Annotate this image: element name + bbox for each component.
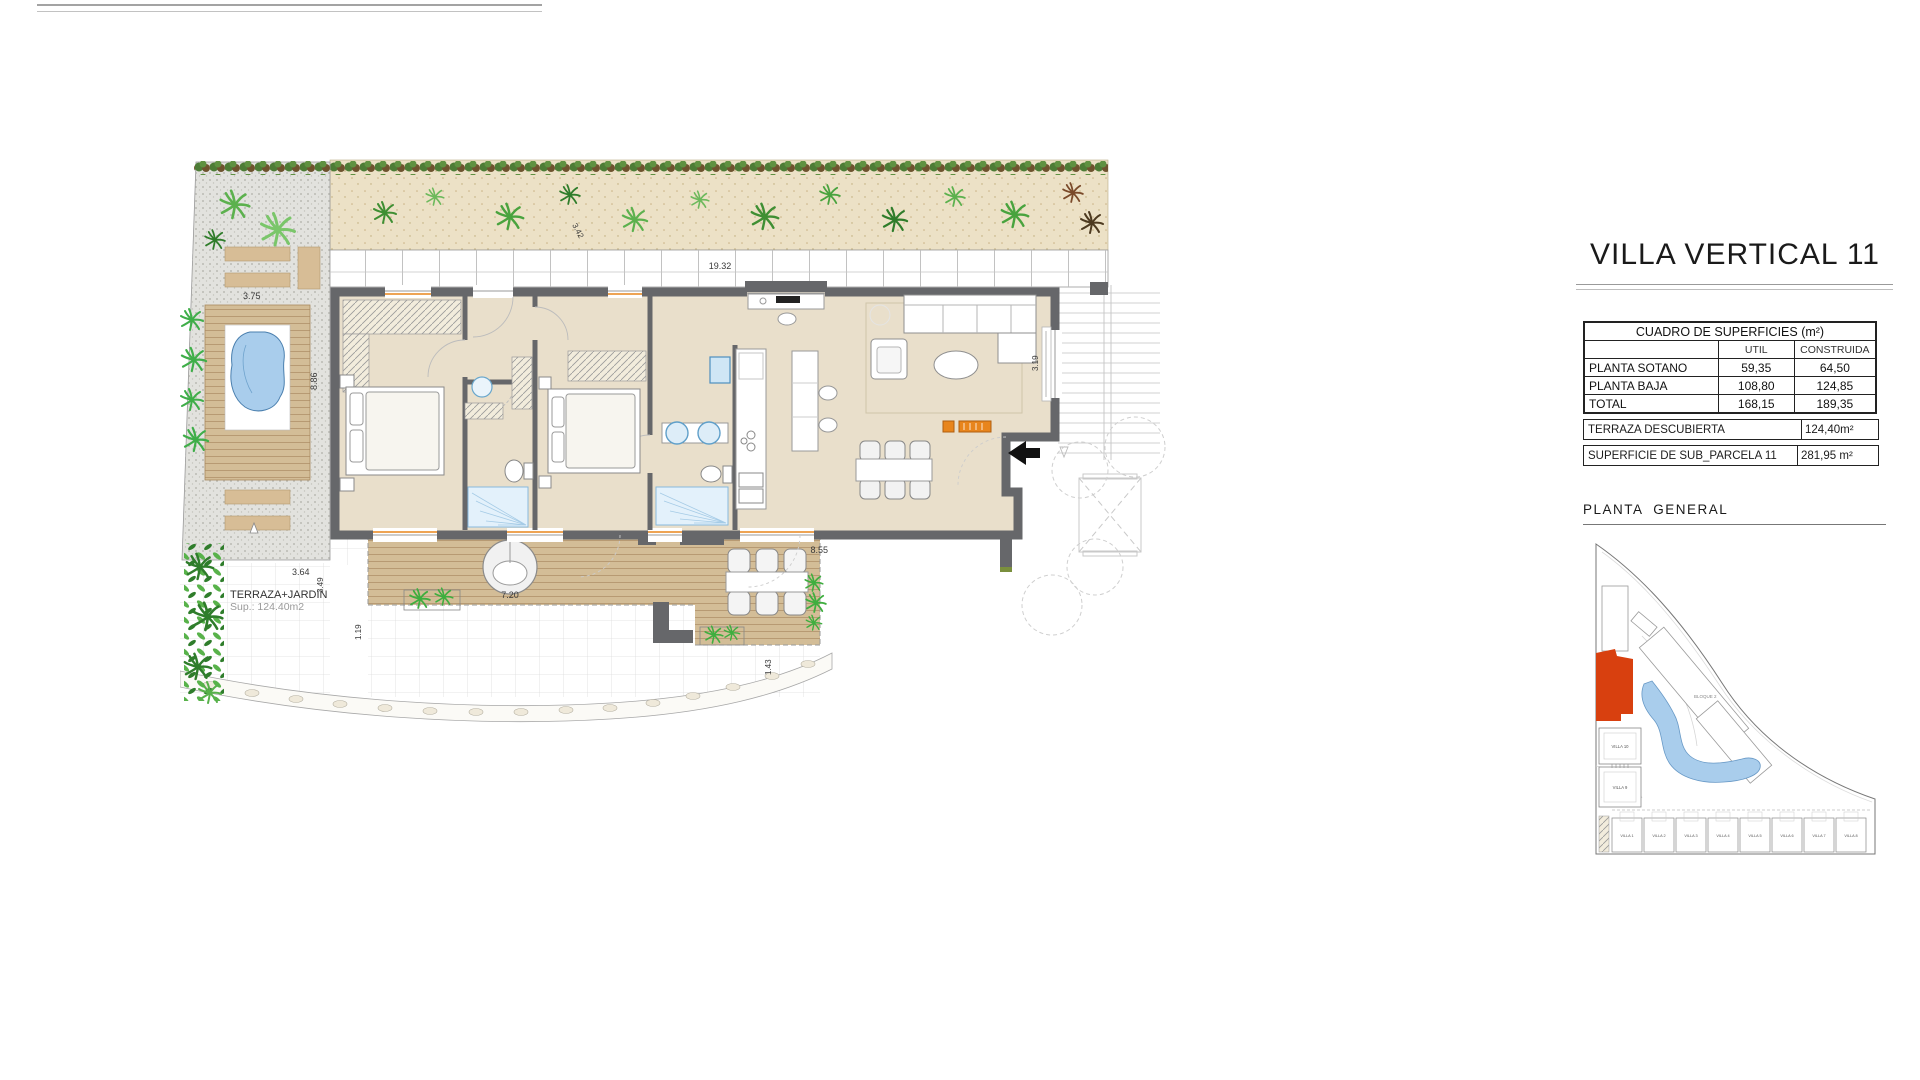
floor-plan-drawing: 3.75 8.86 19.32 3.42	[180, 135, 1180, 727]
side-hedge	[184, 543, 224, 703]
villa-10-block: VILLA 10	[1599, 728, 1641, 764]
surfaces-table: CUADRO DE SUPERFICIES (m²) UTIL CONSTRUI…	[1583, 321, 1877, 414]
table-row: TOTAL 168,15 189,35	[1584, 395, 1876, 414]
toilet	[505, 460, 533, 482]
plan-sheet: { "panel": { "title": "VILLA VERTICAL 11…	[0, 0, 1920, 1080]
dim-living-depth: 3.19	[1031, 355, 1040, 371]
svg-text:VILLA 4: VILLA 4	[1716, 834, 1729, 838]
washbasin	[698, 422, 720, 444]
svg-text:VILLA 5: VILLA 5	[1748, 834, 1761, 838]
surfaces-table-title: CUADRO DE SUPERFICIES (m²)	[1584, 322, 1876, 341]
dim-terrace-d: 7.20	[501, 590, 519, 600]
svg-text:VILLA 3: VILLA 3	[1684, 834, 1697, 838]
svg-text:VILLA 7: VILLA 7	[1812, 834, 1825, 838]
shower-column	[710, 357, 730, 383]
site-plan-drawing: BLOQUE 2 VILLA 10 VILLA 9 VILLA 1 VILLA …	[1582, 536, 1890, 866]
outdoor-dining-set	[726, 549, 808, 615]
parcela-row: SUPERFICIE DE SUB_PARCELA 11 281,95 m²	[1583, 445, 1879, 466]
dim-terrace-b: 3.49	[316, 577, 325, 593]
terraza-row: TERRAZA DESCUBIERTA 124,40m²	[1583, 419, 1879, 440]
svg-text:VILLA 1: VILLA 1	[1620, 834, 1633, 838]
header-rule	[37, 4, 542, 12]
svg-text:VILLA 2: VILLA 2	[1652, 834, 1665, 838]
villa-9-block: VILLA 9	[1599, 767, 1641, 807]
shower	[656, 487, 728, 525]
gravel-garden-area: 3.75 8.86	[181, 161, 330, 560]
villa-11-highlight	[1596, 649, 1633, 721]
pool-wood-deck	[205, 305, 310, 480]
pool	[231, 332, 284, 411]
bed	[548, 389, 640, 473]
hedge-row	[330, 161, 1108, 175]
armchair	[871, 339, 907, 379]
dim-terrace-e: 8.55	[810, 545, 828, 555]
bed	[346, 387, 444, 475]
dim-path-width: 1.43	[764, 659, 773, 675]
title-rule	[1576, 284, 1893, 290]
parcel-boundary	[1596, 544, 1875, 854]
washbasin	[472, 377, 492, 397]
svg-text:VILLA 9: VILLA 9	[1613, 785, 1628, 790]
stairs	[1058, 285, 1160, 460]
dining-set	[856, 441, 932, 499]
coffee-table	[934, 351, 978, 379]
col-construida: CONSTRUIDA	[1794, 341, 1876, 359]
hanging-egg-chair	[483, 540, 537, 594]
terrace-label: TERRAZA+JARDIN	[230, 589, 328, 601]
table-row: PLANTA BAJA 108,80 124,85	[1584, 377, 1876, 395]
svg-text:VILLA 6: VILLA 6	[1780, 834, 1793, 838]
paved-strip: 19.32	[330, 250, 1108, 287]
dim-terrace-c: 1.19	[354, 624, 363, 640]
dim-terrace-a: 3.64	[292, 567, 310, 577]
dim-pool-deck-width: 3.75	[243, 291, 261, 301]
bloque-label: BLOQUE 2	[1694, 694, 1717, 699]
washbasin	[666, 422, 688, 444]
shower	[468, 487, 528, 527]
svg-text:VILLA 8: VILLA 8	[1844, 834, 1857, 838]
garden-sand-band	[330, 160, 1108, 250]
toilet	[701, 466, 732, 483]
monitor	[776, 296, 800, 303]
entrance-arrow	[1008, 441, 1040, 465]
dim-pool-deck-height: 8.86	[309, 372, 319, 390]
dim-paving-width: 19.32	[709, 261, 732, 271]
table-row: PLANTA SOTANO 59,35 64,50	[1584, 359, 1876, 377]
bedroom-1	[340, 300, 461, 491]
col-util: UTIL	[1718, 341, 1794, 359]
svg-text:VILLA 10: VILLA 10	[1612, 744, 1630, 749]
page-title: VILLA VERTICAL 11	[1578, 238, 1892, 272]
site-plan-heading: PLANTA GENERAL	[1583, 502, 1886, 525]
trees	[1022, 417, 1165, 635]
terrace-area-label: Sup.: 124.40m2	[230, 601, 304, 613]
kitchen-island	[792, 351, 818, 451]
